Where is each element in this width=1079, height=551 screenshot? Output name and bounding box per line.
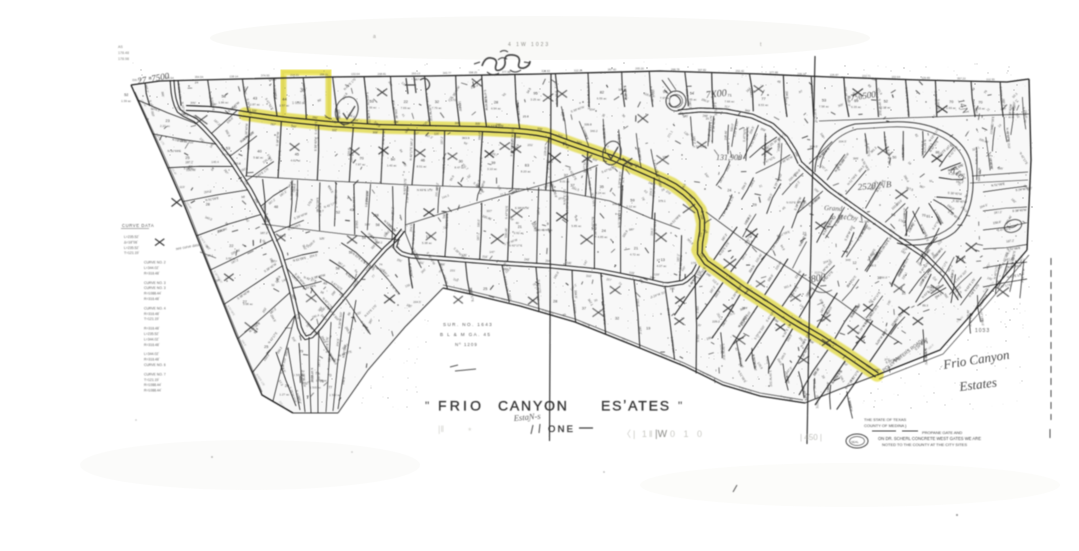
svg-text:150.0ʼ: 150.0ʼ: [636, 299, 641, 308]
svg-text:40: 40: [516, 221, 520, 225]
svg-text:225.87: 225.87: [830, 73, 839, 77]
svg-text:120.2: 120.2: [618, 88, 626, 92]
svg-text:24: 24: [195, 80, 199, 84]
svg-text:N 42°17ʼE: N 42°17ʼE: [969, 313, 973, 327]
svg-text:66: 66: [891, 213, 895, 217]
svg-text:50: 50: [892, 156, 896, 160]
svg-text:R=316.48ʼ: R=316.48ʼ: [144, 271, 160, 275]
svg-text:32: 32: [435, 99, 439, 104]
svg-text:77: 77: [761, 96, 765, 101]
svg-text:S 38°40ʼW: S 38°40ʼW: [586, 82, 590, 97]
svg-text:220.46ʼ: 220.46ʼ: [535, 228, 545, 232]
svg-text:232.64: 232.64: [892, 75, 901, 79]
svg-text:345ʼ: 345ʼ: [845, 258, 851, 262]
svg-text:24: 24: [602, 229, 606, 233]
svg-text:395ʼ: 395ʼ: [160, 91, 165, 97]
svg-text:L=344.02ʼ: L=344.02ʼ: [144, 266, 159, 270]
svg-text:61: 61: [926, 215, 930, 219]
svg-text:5.39 ac: 5.39 ac: [367, 106, 377, 110]
svg-text:79: 79: [299, 350, 303, 354]
svg-text:5.38 ac: 5.38 ac: [422, 241, 432, 245]
svg-text:113ʼ: 113ʼ: [180, 185, 186, 189]
svg-text:L=344.02ʼ: L=344.02ʼ: [144, 337, 159, 341]
svg-text:40: 40: [323, 281, 327, 285]
svg-text:3.55 ac: 3.55 ac: [226, 256, 236, 260]
svg-text:204.5ʼ: 204.5ʼ: [650, 227, 654, 236]
svg-text:13: 13: [661, 258, 665, 262]
svg-text:58: 58: [222, 93, 226, 98]
svg-text:22: 22: [229, 244, 233, 248]
svg-text:56: 56: [349, 251, 353, 255]
svg-text:3.08 ac: 3.08 ac: [243, 302, 253, 306]
svg-text:S 47°52ʼE: S 47°52ʼE: [815, 395, 819, 408]
svg-text:78: 78: [781, 316, 785, 320]
svg-text:37: 37: [564, 173, 568, 178]
svg-text:243ʼ: 243ʼ: [524, 257, 530, 261]
svg-text:CURVE NO. 6: CURVE NO. 6: [144, 363, 166, 367]
svg-text:150.0ʼ: 150.0ʼ: [476, 219, 480, 228]
svg-text:": ": [425, 399, 429, 413]
svg-text:7.58 ac: 7.58 ac: [819, 104, 829, 108]
svg-text:4.62 ac: 4.62 ac: [291, 159, 301, 163]
svg-text:277ʼ: 277ʼ: [558, 197, 564, 201]
svg-text:220.46ʼ: 220.46ʼ: [812, 379, 816, 389]
svg-text:2.12 ac: 2.12 ac: [626, 204, 636, 208]
svg-text:21: 21: [706, 116, 710, 120]
svg-text:59: 59: [630, 197, 634, 202]
svg-text:32: 32: [615, 317, 619, 321]
svg-text:S 38°40ʼW: S 38°40ʼW: [275, 132, 280, 147]
svg-text:1 000 ac: 1 000 ac: [292, 101, 306, 105]
svg-text:187.2ʼ: 187.2ʼ: [435, 182, 440, 191]
svg-text:204.5ʼ: 204.5ʼ: [617, 134, 621, 143]
svg-text:187.2ʼ: 187.2ʼ: [317, 358, 321, 367]
svg-text:178.48: 178.48: [118, 51, 129, 55]
svg-text:25: 25: [483, 287, 487, 291]
svg-text:*: *: [468, 426, 472, 436]
svg-text:25.8: 25.8: [523, 114, 529, 118]
svg-text:315ʼ: 315ʼ: [365, 223, 371, 227]
svg-text:204.5ʼ: 204.5ʼ: [810, 86, 814, 95]
svg-text:THE STATE OF TEXAS: THE STATE OF TEXAS: [864, 417, 907, 422]
svg-text:231ʼ: 231ʼ: [450, 269, 456, 273]
svg-text:39: 39: [491, 160, 495, 165]
svg-text:8.53 ac: 8.53 ac: [758, 103, 768, 107]
svg-text:52: 52: [336, 210, 340, 214]
svg-text:L=235.52ʼ: L=235.52ʼ: [144, 332, 159, 336]
svg-text:L=235.52ʼ: L=235.52ʼ: [124, 246, 139, 250]
svg-text:S 38°40ʼW: S 38°40ʼW: [314, 137, 318, 151]
svg-text:307.82: 307.82: [698, 68, 707, 72]
svg-text:21: 21: [518, 225, 522, 229]
svg-text:7.97 ac: 7.97 ac: [660, 96, 670, 100]
svg-text:N 42°17ʼE: N 42°17ʼE: [409, 147, 414, 161]
svg-text:322.63: 322.63: [541, 69, 550, 73]
svg-text:204.5ʼ: 204.5ʼ: [574, 290, 579, 299]
svg-text:150.0ʼ: 150.0ʼ: [295, 188, 300, 197]
svg-text:78: 78: [320, 379, 324, 383]
svg-text:COUNTY OF MEDINA }: COUNTY OF MEDINA }: [864, 423, 907, 428]
svg-text:S 47°52ʼE: S 47°52ʼE: [314, 121, 318, 134]
svg-text:a: a: [373, 34, 376, 40]
svg-text:299.21: 299.21: [320, 72, 329, 76]
svg-text:395ʼ: 395ʼ: [853, 157, 859, 161]
svg-text:293.13: 293.13: [412, 72, 421, 76]
svg-text:Δ=18°06ʼ: Δ=18°06ʼ: [124, 240, 138, 244]
svg-text:1.86 ac: 1.86 ac: [219, 100, 229, 104]
svg-text:310ʼ: 310ʼ: [586, 274, 592, 279]
svg-text:2.28 ac: 2.28 ac: [881, 105, 891, 109]
svg-text:37: 37: [582, 307, 586, 311]
svg-text:298.3: 298.3: [868, 263, 876, 267]
svg-text:187.2ʼ: 187.2ʼ: [638, 326, 643, 335]
svg-text:R=316.48ʼ: R=316.48ʼ: [144, 297, 160, 301]
svg-text:220.46ʼ: 220.46ʼ: [724, 130, 728, 140]
svg-text:4.85 ac: 4.85 ac: [598, 235, 608, 239]
svg-text:3.10 ac: 3.10 ac: [487, 167, 497, 171]
svg-text:T=121.19ʼ: T=121.19ʼ: [144, 378, 159, 382]
svg-text:216ʼ: 216ʼ: [482, 255, 488, 259]
svg-text:154ʼ: 154ʼ: [590, 108, 596, 112]
svg-text:363.9: 363.9: [462, 136, 470, 140]
svg-text:ONE: ONE: [548, 424, 575, 435]
svg-text:231ʼ: 231ʼ: [528, 143, 534, 147]
svg-text:2.62 ac: 2.62 ac: [514, 231, 524, 235]
svg-text:308ʼ: 308ʼ: [373, 130, 379, 134]
svg-text:250ʼ: 250ʼ: [312, 115, 318, 120]
svg-text:150.0ʼ: 150.0ʼ: [355, 220, 359, 229]
svg-text:96ʼ: 96ʼ: [241, 195, 245, 199]
svg-text:138.14: 138.14: [230, 74, 239, 78]
svg-text:187.2ʼ: 187.2ʼ: [409, 138, 413, 147]
svg-text:PROPANE GATE AND: PROPANE GATE AND: [922, 430, 962, 435]
svg-text:150.0ʼ: 150.0ʼ: [458, 103, 463, 112]
svg-text:358ʼ: 358ʼ: [866, 318, 872, 322]
svg-text:S 38°40ʼW: S 38°40ʼW: [554, 91, 559, 106]
svg-text:21: 21: [634, 246, 638, 250]
svg-text:52: 52: [884, 98, 888, 103]
svg-text:248.81: 248.81: [378, 72, 387, 76]
svg-text:ON DR. SCHERL CONCRETE WES: ON DR. SCHERL CONCRETE WEST GATES WE ARE: [878, 436, 981, 441]
svg-text:25: 25: [264, 345, 268, 349]
svg-text:4.94 ac: 4.94 ac: [491, 107, 501, 111]
svg-text:187.2ʼ: 187.2ʼ: [440, 136, 444, 145]
svg-text:46: 46: [421, 157, 425, 162]
svg-text:204.5ʼ: 204.5ʼ: [696, 334, 700, 343]
svg-text:R=316.48ʼ: R=316.48ʼ: [144, 343, 160, 347]
svg-text:S 38°40ʼW: S 38°40ʼW: [934, 91, 938, 106]
svg-text:377.88: 377.88: [502, 70, 511, 74]
svg-text:28: 28: [553, 299, 557, 303]
svg-text:N 42°17ʼE: N 42°17ʼE: [509, 243, 523, 247]
svg-text:30ʾ: 30ʾ: [300, 87, 308, 94]
svg-text:8.01 ac: 8.01 ac: [560, 180, 570, 184]
svg-text:to M¢Coy: to M¢Coy: [830, 213, 859, 222]
svg-text:53: 53: [370, 99, 374, 104]
svg-text:22: 22: [404, 99, 408, 104]
svg-text:S 47°52ʼE: S 47°52ʼE: [713, 102, 718, 116]
svg-text:1.27 ac: 1.27 ac: [279, 393, 289, 397]
svg-text:CURVE NO. 4: CURVE NO. 4: [144, 306, 166, 310]
svg-text:CURVE NO. 3: CURVE NO. 3: [144, 286, 166, 290]
svg-text:21: 21: [803, 232, 807, 236]
svg-text:204.5ʼ: 204.5ʼ: [839, 140, 848, 144]
svg-text:187.2ʼ: 187.2ʼ: [391, 206, 395, 215]
svg-text:32: 32: [271, 283, 275, 287]
svg-text:NOTED TO THE COUNTY AT TH: NOTED TO THE COUNTY AT THE CITY SITES: [882, 442, 967, 447]
svg-text:271ʼ: 271ʼ: [885, 358, 891, 362]
svg-text:3.25 ac: 3.25 ac: [530, 97, 540, 101]
svg-text:204.5ʼ: 204.5ʼ: [785, 91, 790, 100]
svg-text:N 63°E 175ʼ: N 63°E 175ʼ: [488, 124, 504, 128]
svg-text:R=1088.44ʼ: R=1088.44ʼ: [144, 389, 162, 393]
svg-text:S 38°40ʼW: S 38°40ʼW: [352, 197, 356, 211]
svg-text:Grand: Grand: [824, 204, 843, 213]
svg-text:N 42°17ʼE: N 42°17ʼE: [381, 131, 386, 145]
svg-text:28: 28: [206, 203, 210, 207]
svg-text:214.21: 214.21: [290, 73, 299, 77]
svg-text:70: 70: [328, 374, 332, 378]
svg-text:134ʼ: 134ʼ: [515, 135, 521, 140]
svg-text:2.90 ac: 2.90 ac: [389, 245, 399, 249]
svg-text:": ": [678, 399, 682, 413]
svg-text:|‖: |‖: [438, 424, 444, 434]
svg-text:232.42: 232.42: [736, 69, 745, 73]
svg-text:6.55 ac: 6.55 ac: [597, 97, 607, 101]
svg-text:145.4: 145.4: [211, 160, 219, 164]
svg-text:2.87 ac: 2.87 ac: [250, 102, 260, 106]
svg-text:S 38°40ʼW: S 38°40ʼW: [711, 118, 716, 133]
svg-text:N 51°09ʼE: N 51°09ʼE: [168, 149, 182, 153]
svg-text:5.24 ac: 5.24 ac: [596, 191, 606, 195]
svg-text:1.39 ac: 1.39 ac: [121, 99, 131, 103]
svg-text:CURVE NO. 2: CURVE NO. 2: [144, 261, 166, 265]
svg-text:6.35 ac: 6.35 ac: [851, 105, 861, 109]
svg-text:204.5ʼ: 204.5ʼ: [726, 142, 730, 151]
svg-text:7.87 ac: 7.87 ac: [355, 163, 365, 167]
svg-text:379.1: 379.1: [658, 199, 666, 203]
svg-text:N 42°17ʼE: N 42°17ʼE: [923, 140, 927, 154]
svg-text:220.46ʼ: 220.46ʼ: [504, 227, 508, 237]
svg-text:187ʼ: 187ʼ: [629, 227, 635, 231]
svg-text:9: 9: [547, 222, 549, 226]
svg-text:N 51°09ʼE: N 51°09ʼE: [974, 151, 978, 165]
svg-text:N 63°E 175ʼ: N 63°E 175ʼ: [417, 188, 433, 192]
svg-text:150.0ʼ: 150.0ʼ: [880, 275, 889, 279]
svg-text:5.02 ac: 5.02 ac: [253, 156, 263, 160]
svg-text:CURVE NO. 3: CURVE NO. 3: [144, 281, 166, 285]
svg-text:Nº 1209: Nº 1209: [455, 342, 478, 347]
svg-text:212.55: 212.55: [986, 77, 995, 81]
svg-text:337ʼ: 337ʼ: [487, 209, 493, 213]
svg-text:2.69 ac: 2.69 ac: [946, 106, 956, 110]
svg-text:102ʼ: 102ʼ: [332, 128, 338, 132]
svg-text:140ʼ: 140ʼ: [864, 219, 870, 223]
svg-text:131,900: 131,900: [716, 153, 742, 162]
svg-text:53: 53: [226, 146, 230, 151]
svg-text:L=235.52ʼ: L=235.52ʼ: [124, 235, 139, 239]
svg-text:89.3: 89.3: [922, 304, 928, 308]
svg-text:R=1088.44ʼ: R=1088.44ʼ: [144, 383, 162, 387]
svg-text:125ʼ: 125ʼ: [319, 237, 325, 241]
svg-text:4 1W 1023: 4 1W 1023: [508, 42, 550, 48]
svg-text:71: 71: [728, 93, 732, 98]
svg-text:|W: |W: [655, 429, 668, 440]
svg-text:340.2: 340.2: [590, 129, 598, 133]
svg-text:135ʼ: 135ʼ: [566, 261, 572, 266]
svg-text:343.77: 343.77: [443, 71, 452, 75]
svg-text:268.78: 268.78: [671, 67, 680, 71]
svg-text:75: 75: [993, 247, 997, 251]
svg-text:141.8: 141.8: [612, 202, 620, 206]
svg-text:S 47°52ʼE: S 47°52ʼE: [901, 144, 905, 157]
svg-text:| 450 |: | 450 |: [800, 433, 822, 442]
svg-text:267ʼ: 267ʼ: [270, 122, 276, 127]
svg-text:T=121.19ʼ: T=121.19ʼ: [124, 251, 139, 255]
svg-text:187.2ʼ: 187.2ʼ: [676, 253, 680, 262]
svg-text:1 500 ac: 1 500 ac: [293, 373, 305, 377]
svg-text:204.5ʼ: 204.5ʼ: [810, 144, 819, 148]
svg-text:63: 63: [525, 163, 529, 168]
svg-text:187.2ʼ: 187.2ʼ: [994, 210, 1003, 215]
svg-text:ESʼATES: ESʼATES: [601, 398, 671, 414]
svg-text:53: 53: [822, 97, 826, 102]
svg-text:1 500 ac: 1 500 ac: [329, 393, 341, 397]
svg-text:115ʼ: 115ʼ: [434, 132, 440, 136]
svg-text:4.72 ac: 4.72 ac: [630, 252, 640, 256]
svg-text:SEAL: SEAL: [851, 440, 859, 444]
svg-text:1 500 ac: 1 500 ac: [310, 385, 322, 389]
svg-text:N 63°E 175ʼ: N 63°E 175ʼ: [442, 157, 447, 174]
svg-text:12: 12: [853, 261, 857, 265]
svg-text:150.0ʼ: 150.0ʼ: [695, 306, 699, 315]
svg-text:265.20: 265.20: [635, 67, 644, 71]
svg-text:95: 95: [533, 90, 537, 95]
svg-text:N 63°E 175ʼ: N 63°E 175ʼ: [786, 201, 802, 205]
svg-text:FRIO: FRIO: [438, 398, 484, 414]
svg-text:204.5ʼ: 204.5ʼ: [413, 300, 422, 304]
svg-text:8.51 ac: 8.51 ac: [417, 164, 427, 168]
svg-text:25: 25: [185, 156, 189, 160]
svg-text:397.22: 397.22: [957, 77, 966, 81]
svg-text:247ʼ: 247ʼ: [1001, 107, 1007, 111]
svg-text:4.07 ac: 4.07 ac: [657, 264, 667, 268]
svg-text:7.65 ac: 7.65 ac: [687, 98, 697, 102]
svg-text:52: 52: [124, 92, 128, 97]
svg-text:150.0ʼ: 150.0ʼ: [707, 133, 712, 142]
svg-text:229.2: 229.2: [712, 319, 720, 323]
svg-text:N 63°E 175ʼ: N 63°E 175ʼ: [924, 349, 929, 366]
svg-text:24: 24: [727, 189, 731, 193]
svg-text:SUR. NO. 1643: SUR. NO. 1643: [443, 322, 493, 327]
svg-text:339.8: 339.8: [584, 123, 592, 127]
svg-text:130ʼ: 130ʼ: [654, 272, 660, 276]
svg-text:5.85 ac: 5.85 ac: [571, 224, 581, 228]
svg-text:54: 54: [362, 236, 366, 240]
svg-text:299.16: 299.16: [797, 72, 806, 76]
svg-text:73: 73: [315, 372, 319, 376]
svg-text:L=344.02ʼ: L=344.02ʼ: [144, 352, 159, 356]
svg-text:147ʼ: 147ʼ: [489, 250, 495, 254]
svg-text:35: 35: [600, 184, 604, 189]
svg-text:B L & M GA. 45: B L & M GA. 45: [440, 332, 491, 337]
svg-text:330ʼ: 330ʼ: [874, 368, 880, 372]
svg-text:3.57 ac: 3.57 ac: [279, 104, 289, 108]
svg-text:28: 28: [494, 100, 498, 105]
svg-text:45: 45: [295, 152, 299, 157]
svg-text:58: 58: [376, 223, 380, 227]
svg-text:57: 57: [701, 210, 705, 214]
svg-text:〈| 1‖: 〈| 1‖: [622, 429, 655, 439]
svg-text:187.2ʼ: 187.2ʼ: [536, 206, 540, 215]
svg-text:150.0ʼ: 150.0ʼ: [765, 356, 769, 365]
svg-text:N 42°17ʼE: N 42°17ʼE: [479, 157, 484, 171]
svg-text:187.2ʼ: 187.2ʼ: [260, 231, 269, 235]
svg-text:354.54: 354.54: [195, 75, 204, 79]
svg-text:176ʼ: 176ʼ: [691, 261, 697, 265]
svg-text:R=1088.44ʼ: R=1088.44ʼ: [144, 292, 162, 296]
svg-text:370ʼ: 370ʼ: [190, 101, 196, 105]
svg-text:R=316.48ʼ: R=316.48ʼ: [144, 358, 160, 362]
svg-text:70: 70: [922, 214, 926, 218]
svg-text:8.20 ac: 8.20 ac: [521, 170, 531, 174]
svg-text:0 1 0: 0 1 0: [670, 429, 705, 439]
svg-text:77: 77: [328, 386, 332, 390]
svg-text:371.8: 371.8: [745, 239, 753, 243]
svg-text:R=316.48ʼ: R=316.48ʼ: [144, 327, 160, 331]
svg-text:377.88: 377.88: [769, 71, 778, 75]
svg-text:S 29°W 310ʼ: S 29°W 310ʼ: [565, 195, 569, 212]
svg-text:132.64: 132.64: [351, 72, 360, 76]
svg-text:222.71: 222.71: [862, 74, 871, 78]
svg-text:23: 23: [166, 119, 170, 123]
svg-text:R=316.48ʼ: R=316.48ʼ: [144, 312, 160, 316]
svg-text:T=121.19ʼ: T=121.19ʼ: [144, 317, 159, 321]
svg-text:24: 24: [279, 189, 283, 193]
svg-text:48: 48: [274, 205, 278, 209]
svg-text:19: 19: [646, 326, 650, 330]
svg-text:58: 58: [336, 266, 340, 270]
svg-text:398.25: 398.25: [469, 71, 478, 75]
svg-text:305ʼ: 305ʼ: [475, 122, 481, 126]
svg-text:CURVE NO. 7: CURVE NO. 7: [144, 372, 166, 376]
svg-text:7.69 ac: 7.69 ac: [401, 106, 411, 110]
svg-text:7.79 ac: 7.79 ac: [432, 106, 442, 110]
svg-text:AS: AS: [118, 45, 123, 49]
svg-text:43: 43: [253, 95, 257, 100]
svg-text:204.5ʼ: 204.5ʼ: [649, 187, 653, 196]
svg-text:150.0ʼ: 150.0ʼ: [477, 131, 481, 140]
svg-text:1.40 ac: 1.40 ac: [387, 164, 397, 168]
svg-text:329.89: 329.89: [921, 76, 930, 80]
svg-text:178.98: 178.98: [118, 57, 129, 61]
svg-text:101.7: 101.7: [316, 209, 324, 213]
svg-text:7.66 ac: 7.66 ac: [725, 100, 735, 104]
svg-text:7Χ00: 7Χ00: [705, 88, 727, 101]
svg-text:187.2ʼ: 187.2ʼ: [690, 133, 695, 142]
svg-text:82: 82: [600, 90, 604, 95]
svg-text:CURVE DATA: CURVE DATA: [122, 223, 154, 228]
svg-text:220.46ʼ: 220.46ʼ: [826, 382, 830, 392]
